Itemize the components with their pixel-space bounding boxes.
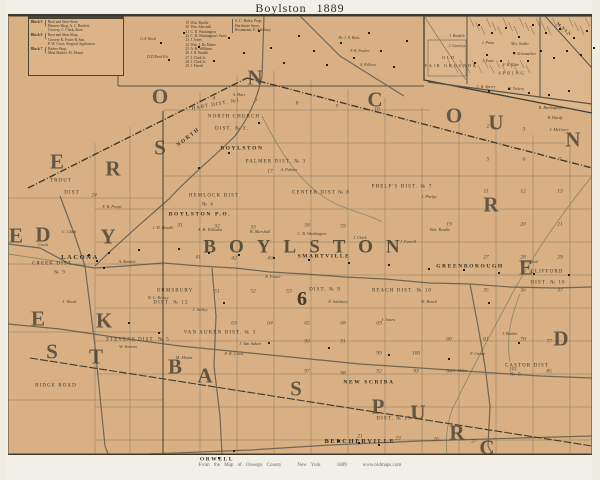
house-symbol <box>308 259 310 261</box>
lot-number: 41 <box>195 255 201 261</box>
house-symbol <box>488 90 490 92</box>
farm-owner-name: R. Foster <box>265 275 281 279</box>
house-symbol <box>313 50 315 52</box>
place-name-label: BOYLSTON <box>220 146 263 152</box>
farm-owner-name: J. Clark <box>353 236 367 240</box>
directory-block-lines: Boot and Shoe Shop,Grocery R. Foster & S… <box>48 33 96 45</box>
inset-resident-name: W. Vickery <box>508 88 524 92</box>
district-label: TROUT <box>50 179 72 184</box>
boundary-letter: O <box>446 106 462 127</box>
house-symbol <box>283 62 285 64</box>
boundary-letter: N <box>247 68 262 89</box>
lot-number: 101 <box>509 367 517 373</box>
house-symbol <box>158 332 160 334</box>
directory-block: Block 5{Boot and Shoe Store,Harness Shop… <box>31 20 121 32</box>
lot-number: 36 <box>520 288 526 294</box>
lot-number: 2 <box>487 124 490 130</box>
house-symbol <box>326 64 328 66</box>
farm-owner-name: F. Castor <box>470 352 486 356</box>
house-symbol <box>178 248 180 250</box>
district-label: CENTER DIST № 8 <box>292 191 350 196</box>
house-symbol <box>393 66 395 68</box>
house-symbol <box>528 92 530 94</box>
house-symbol <box>128 322 130 324</box>
house-symbol <box>103 267 105 269</box>
house-symbol <box>353 57 355 59</box>
street-name-label: OLD <box>442 56 456 60</box>
lot-number: 51 <box>214 289 220 295</box>
lot-number: 68 <box>340 321 346 327</box>
lot-number: 23 <box>395 436 401 442</box>
business-list-number: 29 <box>182 64 191 68</box>
boundary-letter: R <box>105 159 120 180</box>
lot-number: 65 <box>304 321 310 327</box>
house-symbol <box>448 358 450 360</box>
lot-number: 97 <box>304 369 310 375</box>
house-symbol <box>573 37 575 39</box>
lot-number: 37 <box>557 288 563 294</box>
lot-number: 21 <box>357 434 363 440</box>
farm-owner-name: C. B. Washington <box>297 232 326 236</box>
farm-owner-name: W. Stevens <box>119 345 137 349</box>
house-symbol <box>328 347 330 349</box>
village-resident-name: Dr. J. N. Betts <box>338 37 359 41</box>
lot-number: 11 <box>483 189 488 195</box>
house-symbol <box>463 269 465 271</box>
inset-resident-name: J. Schumacher <box>514 53 536 57</box>
boundary-letter: S <box>154 138 166 159</box>
boundary-letter: O <box>152 87 168 108</box>
house-symbol <box>540 50 542 52</box>
farm-owner-name: E. Salsbury <box>328 300 347 304</box>
inset-resident-name: J. Burdick <box>449 35 464 39</box>
boundary-letter: S <box>290 379 302 400</box>
lot-number: 99 <box>376 351 382 357</box>
house-symbol <box>233 450 235 452</box>
directory-block-lines: Boot and Shoe Store,Harness Shop, A. C. … <box>48 20 90 32</box>
farm-owner-name: S. Hart <box>233 93 245 97</box>
district-label: VAN AUKEN DIST. № 3 <box>184 331 257 336</box>
caption-year: 1889 <box>337 463 347 468</box>
boundary-letter: D <box>553 329 568 350</box>
house-symbol <box>498 272 500 274</box>
district-label: DIST <box>64 191 80 196</box>
directory-block-label: Block 7 <box>31 47 44 55</box>
boundary-letter: K <box>96 311 112 332</box>
house-symbol <box>218 457 220 459</box>
lot-number: 92 <box>376 369 382 375</box>
lot-number: 29 <box>557 255 563 261</box>
house-symbol <box>258 122 260 124</box>
house-symbol <box>108 252 110 254</box>
lot-number: 98 <box>340 371 346 377</box>
house-symbol <box>488 302 490 304</box>
house-symbol <box>270 47 272 49</box>
caption-site: www.oldmaps.com <box>363 463 402 468</box>
lot-number: 6 <box>523 157 526 163</box>
inset-resident-name: Mrs. Sadler <box>511 43 529 47</box>
house-symbol <box>268 342 270 344</box>
house-symbol <box>500 60 502 62</box>
house-symbol <box>338 440 340 442</box>
house-symbol <box>478 24 480 26</box>
directory-block-label: Block 5 <box>31 20 44 32</box>
lot-number: 20 <box>520 222 526 228</box>
boundary-letter: U <box>410 403 425 424</box>
business-list-name: J. Farrell <box>191 64 204 68</box>
lot-number: 33 <box>250 225 256 231</box>
district-label: № 4 <box>202 203 214 208</box>
farm-owner-name: R. Burlingham <box>539 106 564 110</box>
farm-owner-name: D. Beach <box>421 300 437 304</box>
house-symbol <box>545 32 547 34</box>
lot-number: 100 <box>412 351 420 357</box>
place-name-label: NEW SCRIBA <box>343 380 394 386</box>
boundary-letter: E <box>50 152 64 173</box>
lot-number: 91 <box>340 339 346 345</box>
lot-number: 90 <box>304 339 310 345</box>
lot-number: 70 <box>520 337 526 343</box>
place-name-label: ORWELL <box>200 457 234 463</box>
lot-number: 31 <box>177 223 183 229</box>
lot-number: 4 <box>213 96 216 102</box>
lot-number: 5 <box>487 157 490 163</box>
district-label: PALMER DIST. № 3 <box>246 160 306 165</box>
house-symbol <box>568 274 570 276</box>
boundary-letter: S <box>46 342 58 363</box>
farm-owner-name: J. Van Auken <box>239 342 261 346</box>
village-resident-name: A. Fellows <box>360 64 376 68</box>
hardware-store-note: S. C. Haley, Prop.Hardware Store,Restaur… <box>232 19 307 33</box>
boundary-letter: E <box>9 226 23 247</box>
house-symbol <box>532 24 534 26</box>
boundary-letter: U <box>488 113 503 134</box>
lot-number: 24 <box>91 193 97 199</box>
district-label: DIST. № 2. <box>215 127 249 132</box>
boundary-letter: Y <box>100 227 115 248</box>
house-symbol <box>580 54 582 56</box>
boundary-letter: C <box>479 438 494 459</box>
lot-number: 9 <box>336 104 339 110</box>
village-resident-name: F. B. Poulter <box>350 50 369 54</box>
house-symbol <box>518 36 520 38</box>
inset-resident-name: J. Prass <box>482 42 494 46</box>
house-symbol <box>380 50 382 52</box>
house-symbol <box>388 264 390 266</box>
house-symbol <box>593 47 595 49</box>
place-name-label: BOYLSTON P.O. <box>169 212 232 218</box>
district-label: STEVENS DIST. № 5 <box>106 338 170 343</box>
district-label: DIST. № 15 <box>376 417 411 422</box>
house-symbol <box>527 60 529 62</box>
boundary-letter: P <box>372 397 385 418</box>
lot-number: 32 <box>214 224 220 230</box>
village-resident-name: D.D.Reed Est. <box>147 56 169 60</box>
lot-number: 53 <box>286 289 292 295</box>
lot-number: 63 <box>231 321 237 327</box>
district-label: BEACH DIST. № 10 <box>372 289 432 294</box>
district-label: CLIFFORD <box>531 270 564 275</box>
district-label: NORTH CHURCH <box>208 115 260 120</box>
house-symbol <box>428 268 430 270</box>
lot-number: 13 <box>557 189 563 195</box>
place-name-label: GREENBOROUGH <box>436 264 503 270</box>
district-label: RIDGE ROAD <box>35 384 77 389</box>
boundary-letter: A <box>197 366 212 387</box>
house-symbol <box>568 90 570 92</box>
house-symbol <box>505 27 507 29</box>
house-symbol <box>513 52 515 54</box>
lot-number: 64 <box>267 321 273 327</box>
house-symbol <box>388 354 390 356</box>
lot-number: 61 <box>483 337 489 343</box>
lot-number: 28 <box>520 255 526 261</box>
house-symbol <box>358 442 360 444</box>
boundary-letter: R <box>483 195 498 216</box>
district-label: PHELP'S DIST. № 7 <box>372 185 433 190</box>
lot-number: 12 <box>520 189 526 195</box>
house-symbol <box>340 42 342 44</box>
place-name-label: LACONA <box>61 255 99 262</box>
district-label: ORMSBURY <box>157 289 194 294</box>
house-symbol <box>348 262 350 264</box>
district-label: № 5 <box>510 373 522 378</box>
district-label: CREEK DIST <box>32 262 72 267</box>
house-symbol <box>198 167 200 169</box>
farm-owner-name: J. Ashley <box>192 308 207 312</box>
hardware-note-line: Restaurant, E. Salsbury. <box>235 28 307 33</box>
lot-number: 27 <box>471 439 477 445</box>
house-symbol <box>138 249 140 251</box>
house-symbol <box>508 88 510 90</box>
lot-number: 42 <box>231 256 237 262</box>
lot-number: 85 <box>546 369 552 375</box>
farm-owner-name: A. Burdett <box>118 260 135 264</box>
farm-owner-name: F. B. Pruyn <box>103 205 122 209</box>
directory-block: Block 6{Boot and Shoe Shop,Grocery R. Fo… <box>31 33 121 45</box>
farm-owner-name: W. C. Kelsey <box>147 296 168 300</box>
lot-number: 94 <box>446 369 452 375</box>
farm-owner-name: J. McGuire <box>550 128 569 132</box>
village-resident-name: G.A.Wood <box>140 38 155 42</box>
street-name-label: FAIR GROUNDS <box>425 64 477 68</box>
lot-number: 27 <box>483 255 489 261</box>
farm-owner-name: J. Wood <box>62 300 75 304</box>
district-label: DIST. № 12 <box>153 301 188 306</box>
boundary-letter: N <box>565 130 580 151</box>
lot-number: 69 <box>376 321 382 327</box>
house-symbol <box>586 30 588 32</box>
farm-owner-name: Creek <box>38 243 48 247</box>
lot-number: 3 <box>523 127 526 133</box>
house-symbol <box>533 273 535 275</box>
directory-inset-box: Block 5{Boot and Shoe Store,Harness Shop… <box>28 16 124 76</box>
boundary-letter: T <box>89 347 103 368</box>
house-symbol <box>474 62 476 64</box>
house-symbol <box>486 54 488 56</box>
district-label: DIST. № 9 <box>309 288 341 293</box>
house-symbol <box>223 302 225 304</box>
farm-owner-name: A. Palmer <box>281 168 298 172</box>
inset-resident-name: C. K. Sperry <box>477 86 496 90</box>
lot-number: 7 <box>255 99 258 105</box>
lot-number: 21 <box>557 222 563 228</box>
lot-number: 7 <box>559 157 562 163</box>
house-symbol <box>298 35 300 37</box>
house-symbol <box>406 40 408 42</box>
house-symbol <box>96 260 98 262</box>
district-label: HEMLOCK DIST <box>189 194 239 199</box>
house-symbol <box>518 342 520 344</box>
farm-owner-name: J. Farrell <box>400 240 416 244</box>
lot-number: 93 <box>413 369 419 375</box>
lot-number: 52 <box>250 289 256 295</box>
caption-state: New York <box>297 463 320 468</box>
house-symbol <box>243 52 245 54</box>
township-number-label: 6 <box>297 289 307 309</box>
lot-number: 58 <box>304 223 310 229</box>
house-symbol <box>160 42 162 44</box>
house-symbol <box>566 50 568 52</box>
farm-owner-name: B. Hardy <box>547 116 562 120</box>
lot-number: 17 <box>267 169 273 175</box>
lot-number: 60 <box>446 337 452 343</box>
caption-source: From the Map of Oswego County <box>199 463 282 468</box>
district-label: № 9 <box>54 271 66 276</box>
farm-owner-name: P. W. Cross <box>225 352 244 356</box>
farm-owner-name: J. Phelps <box>421 195 436 199</box>
directory-block: Block 7{Barber Shop,Meat Market, M. Moun… <box>31 47 121 55</box>
house-symbol <box>238 254 240 256</box>
boundary-letter: E <box>31 309 45 330</box>
lot-number: 77 <box>546 339 552 345</box>
house-symbol <box>559 28 561 30</box>
farm-owner-name: J. Jones <box>381 318 395 322</box>
house-symbol <box>168 59 170 61</box>
house-symbol <box>553 57 555 59</box>
lot-number: 26 <box>433 437 439 443</box>
house-symbol <box>208 252 210 254</box>
lot-number: 43 <box>267 256 273 262</box>
inset-resident-name: J. Estes <box>482 60 494 64</box>
business-list-row: 29J. Farrell <box>182 64 242 68</box>
house-symbol <box>378 444 380 446</box>
lot-number: 35 <box>483 288 489 294</box>
farm-owner-name: Wm. Beadle <box>430 228 450 232</box>
house-symbol <box>88 254 90 256</box>
house-symbol <box>368 32 370 34</box>
place-name-label: SMARTVILLE <box>298 254 351 260</box>
house-symbol <box>273 257 275 259</box>
lot-number: 8 <box>296 101 299 107</box>
farm-owner-name: J. H. Beadle <box>153 226 174 230</box>
lot-number: 19 <box>446 222 452 228</box>
scanned-map-page: Boylston 1889 <box>0 0 600 480</box>
directory-block-lines: Barber Shop,Meat Market, M. Mount. <box>48 47 84 55</box>
house-symbol <box>491 32 493 34</box>
lot-number: 10 <box>374 107 380 113</box>
district-label: DIST. № 10 <box>530 281 565 286</box>
inset-resident-name: J. Gurnsey <box>449 45 465 49</box>
street-name-label: SPRING <box>498 72 525 77</box>
farm-owner-name: M. Mount <box>176 356 193 360</box>
directory-block-label: Block 6 <box>31 33 44 45</box>
inset-resident-name: F. B. Kline <box>503 64 519 68</box>
house-symbol <box>228 152 230 154</box>
map-caption: From the Map of Oswego CountyNew York188… <box>0 463 600 468</box>
boundary-letter: R <box>449 423 464 444</box>
farm-owner-name: J. Barber <box>502 332 518 336</box>
farm-owner-name: G. Miller <box>452 369 468 373</box>
map-area: ONCOUNERSDYEKESTBASPURCREDBOYLSTON6LACON… <box>8 14 592 455</box>
lot-number: 59 <box>340 224 346 230</box>
house-symbol <box>548 94 550 96</box>
farm-owner-name: C. Clark <box>62 230 76 234</box>
